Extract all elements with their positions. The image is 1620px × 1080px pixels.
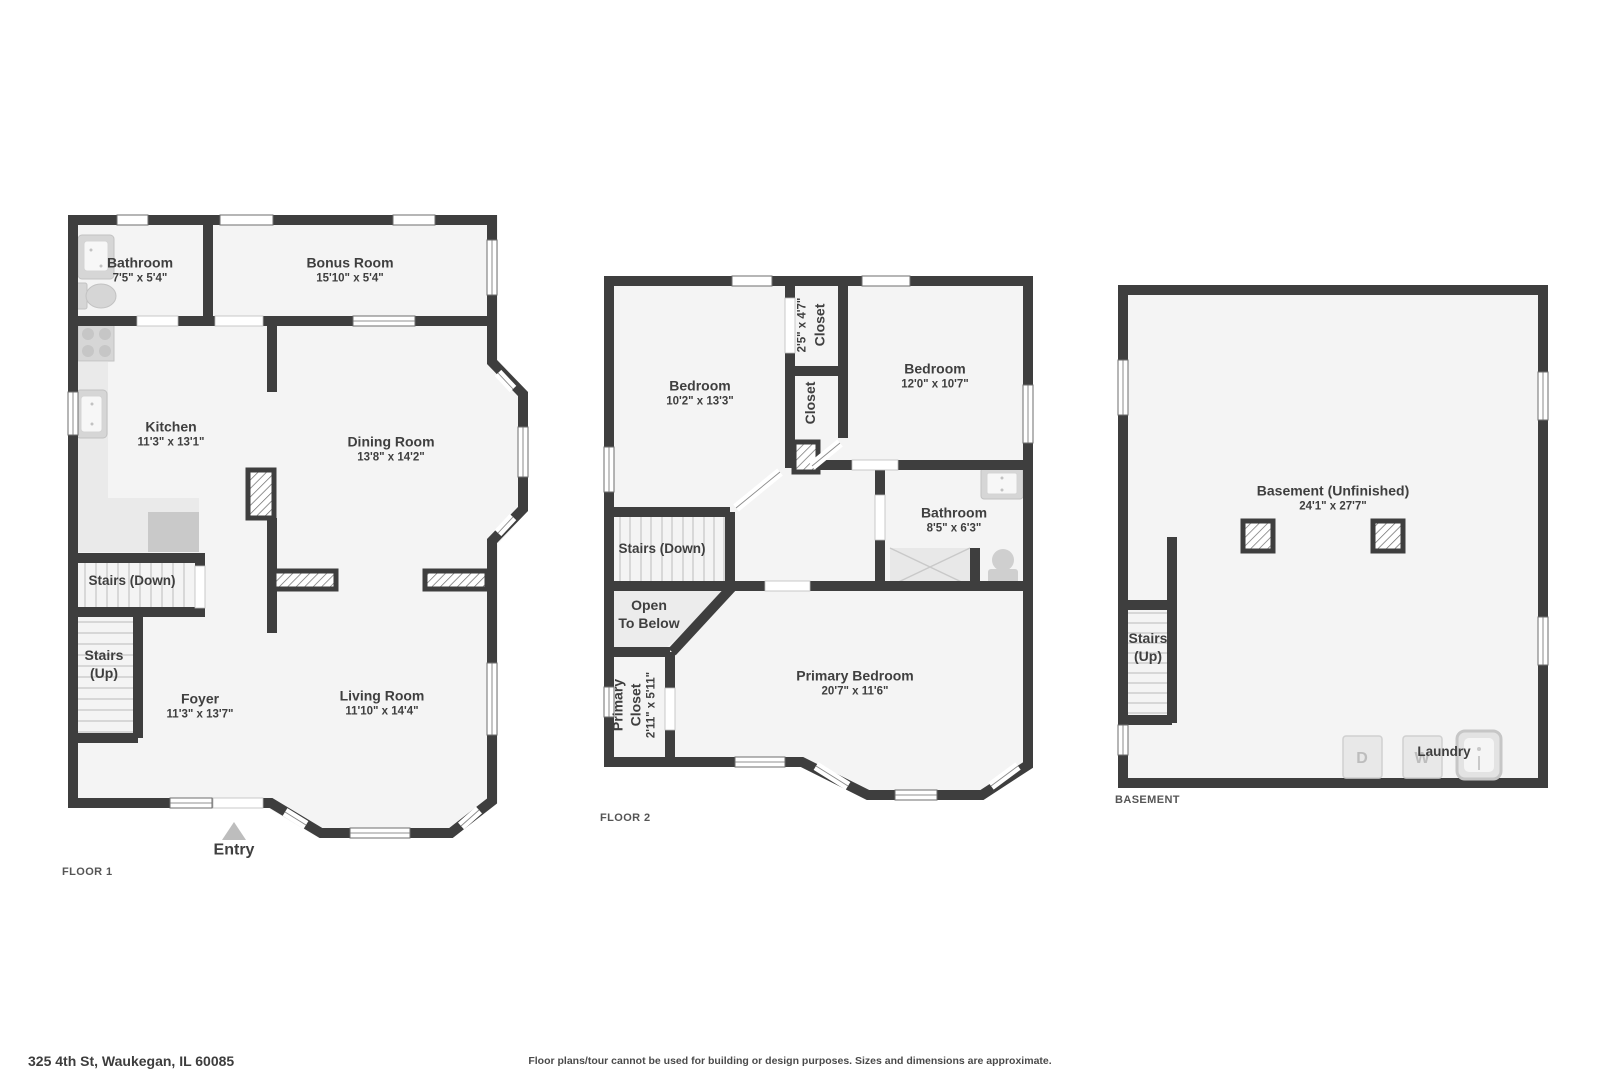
room-name: Bonus Room <box>306 253 393 271</box>
room-name: Foyer <box>167 689 234 707</box>
room-name: Closet <box>801 382 819 425</box>
room-label-closet-top: 2'5" x 4'7" Closet <box>795 298 828 353</box>
room-label-basement: Basement (Unfinished) 24'1" x 27'7" <box>1257 481 1409 514</box>
stairs-up-line2: (Up) <box>85 664 124 682</box>
kitchen-sink-icon <box>76 390 107 438</box>
room-label-living-room: Living Room 11'10" x 14'4" <box>340 686 425 719</box>
room-dims: 8'5" x 6'3" <box>921 522 987 537</box>
bathroom2-sink-icon <box>981 468 1023 499</box>
room-name: Closet <box>810 298 828 353</box>
room-label-primary-bedroom: Primary Bedroom 20'7" x 11'6" <box>796 666 913 699</box>
room-dims: 20'7" x 11'6" <box>796 685 913 700</box>
floor1-tag: FLOOR 1 <box>62 866 112 878</box>
room-label-open-to-below: Open To Below <box>618 596 679 632</box>
toilet-icon <box>73 283 116 309</box>
stairs-up-line1: Stairs <box>1129 629 1168 647</box>
basement-tag: BASEMENT <box>1115 794 1180 806</box>
room-label-stairs-up-f1: Stairs (Up) <box>85 646 124 682</box>
basement-plan: D W <box>1100 270 1570 815</box>
room-label-stairs-down-f1: Stairs (Down) <box>88 572 175 590</box>
room-dims: 7'5" x 5'4" <box>107 272 173 287</box>
room-label-dining-room: Dining Room 13'8" x 14'2" <box>347 432 434 465</box>
room-label-foyer: Foyer 11'3" x 13'7" <box>167 689 234 722</box>
room-dims: 11'3" x 13'1" <box>138 436 205 451</box>
room-dims: 10'2" x 13'3" <box>666 395 734 410</box>
room-name: Bathroom <box>921 503 987 521</box>
svg-text:D: D <box>1356 750 1368 767</box>
room-label-closet-mid: Closet <box>801 382 819 425</box>
room-label-bathroom-f2: Bathroom 8'5" x 6'3" <box>921 503 987 536</box>
room-dims: 11'3" x 13'7" <box>167 708 234 723</box>
room-name: Bedroom <box>666 376 734 394</box>
floorplan-page: D W Bathroom 7'5" x 5'4" Bonus Room 15'1… <box>0 0 1620 1080</box>
room-label-bonus-room: Bonus Room 15'10" x 5'4" <box>306 253 393 286</box>
basement-floor-fill <box>1118 285 1548 788</box>
room-name: Living Room <box>340 686 425 704</box>
room-dims: 15'10" x 5'4" <box>306 272 393 287</box>
room-name: Primary Bedroom <box>796 666 913 684</box>
dryer-icon: D <box>1343 736 1382 778</box>
room-name: Bathroom <box>107 253 173 271</box>
floor2-tag: FLOOR 2 <box>600 812 650 824</box>
stairs-up-line2: (Up) <box>1129 647 1168 665</box>
room-label-primary-closet: Primary Closet 2'11" x 5'11" <box>608 672 659 738</box>
room-dims: 13'8" x 14'2" <box>347 451 434 466</box>
entry-label: Entry <box>214 841 255 862</box>
room-label-stairs-up-basement: Stairs (Up) <box>1129 629 1168 665</box>
room-label-stairs-down-f2: Stairs (Down) <box>618 540 705 558</box>
room-dims: 11'10" x 14'4" <box>340 705 425 720</box>
room-label-bedroom-right: Bedroom 12'0" x 10'7" <box>901 359 969 392</box>
open-below-line2: To Below <box>618 614 679 632</box>
room-dims: 12'0" x 10'7" <box>901 378 969 393</box>
stairs-up-line1: Stairs <box>85 646 124 664</box>
room-dims: 2'5" x 4'7" <box>795 298 810 353</box>
stove-icon <box>78 323 114 361</box>
disclaimer-text: Floor plans/tour cannot be used for buil… <box>528 1055 1051 1067</box>
bathtub-icon <box>890 548 970 586</box>
open-below-line1: Open <box>618 596 679 614</box>
room-name: Dining Room <box>347 432 434 450</box>
room-name: Basement (Unfinished) <box>1257 481 1409 499</box>
primary-closet-line2: Closet <box>627 672 645 738</box>
room-name: Kitchen <box>138 417 205 435</box>
floor1-plan <box>50 200 540 880</box>
room-name: Bedroom <box>901 359 969 377</box>
primary-closet-line1: Primary <box>608 672 626 738</box>
room-label-bathroom: Bathroom 7'5" x 5'4" <box>107 253 173 286</box>
property-address: 325 4th St, Waukegan, IL 60085 <box>28 1053 234 1069</box>
room-dims: 2'11" x 5'11" <box>645 672 660 738</box>
room-label-laundry: Laundry <box>1417 743 1470 761</box>
entry-arrow-icon <box>222 822 246 840</box>
room-label-kitchen: Kitchen 11'3" x 13'1" <box>138 417 205 450</box>
room-label-bedroom-left: Bedroom 10'2" x 13'3" <box>666 376 734 409</box>
room-dims: 24'1" x 27'7" <box>1257 500 1409 515</box>
